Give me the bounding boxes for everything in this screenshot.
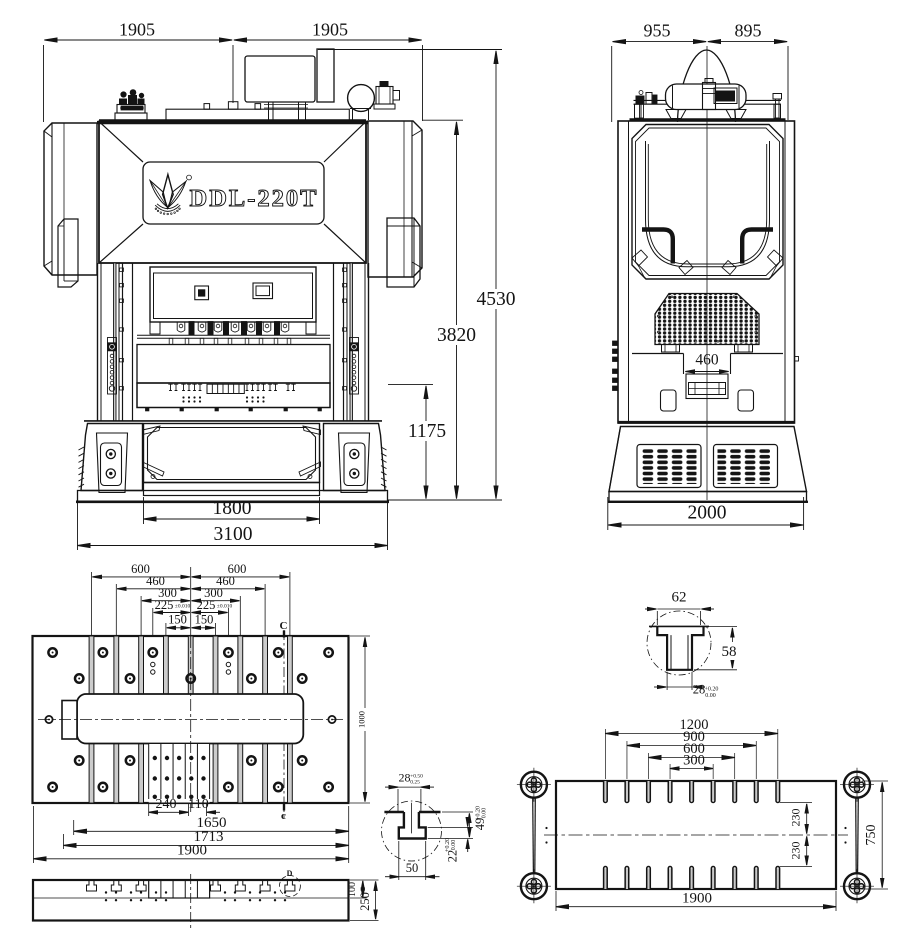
svg-text:150: 150	[195, 613, 214, 627]
svg-text:58: 58	[722, 644, 737, 660]
svg-text:28: 28	[693, 683, 706, 697]
svg-text:750: 750	[864, 825, 879, 846]
svg-text:230: 230	[789, 809, 803, 827]
svg-text:2000: 2000	[688, 503, 727, 524]
svg-text:240: 240	[156, 797, 177, 812]
svg-text:0.00: 0.00	[705, 693, 716, 699]
svg-text:62: 62	[672, 590, 687, 606]
svg-text:1905: 1905	[312, 20, 348, 40]
svg-text:50: 50	[406, 861, 419, 875]
svg-text:1000: 1000	[357, 711, 367, 728]
svg-text:250: 250	[358, 892, 372, 911]
svg-text:3100: 3100	[214, 524, 253, 545]
svg-text:C: C	[280, 620, 288, 632]
svg-text:460: 460	[695, 352, 719, 369]
svg-text:110: 110	[188, 797, 208, 812]
svg-text:3820: 3820	[437, 325, 476, 346]
svg-text:0.00: 0.00	[482, 808, 488, 819]
svg-text:225: 225	[197, 598, 216, 612]
svg-text:28: 28	[399, 771, 411, 785]
svg-text:1905: 1905	[119, 20, 155, 40]
svg-text:±0.010: ±0.010	[217, 604, 233, 610]
svg-text:1900: 1900	[177, 843, 207, 859]
svg-text:100: 100	[347, 882, 358, 897]
svg-text:300: 300	[683, 753, 705, 769]
svg-text:0.25: 0.25	[410, 780, 420, 786]
svg-text:DDL-220T: DDL-220T	[190, 185, 319, 212]
svg-text:225: 225	[155, 598, 174, 612]
svg-text:0.00: 0.00	[451, 840, 457, 851]
svg-text:150: 150	[168, 613, 187, 627]
svg-text:1900: 1900	[682, 891, 712, 907]
svg-text:c: c	[281, 810, 286, 822]
svg-text:+0.20: +0.20	[705, 687, 719, 693]
svg-text:D: D	[287, 869, 293, 878]
svg-text:230: 230	[789, 842, 803, 860]
svg-text:±0.010: ±0.010	[175, 604, 191, 610]
svg-text:955: 955	[644, 21, 671, 41]
svg-text:4530: 4530	[477, 289, 516, 310]
svg-text:895: 895	[735, 21, 762, 41]
svg-text:1175: 1175	[408, 421, 446, 442]
